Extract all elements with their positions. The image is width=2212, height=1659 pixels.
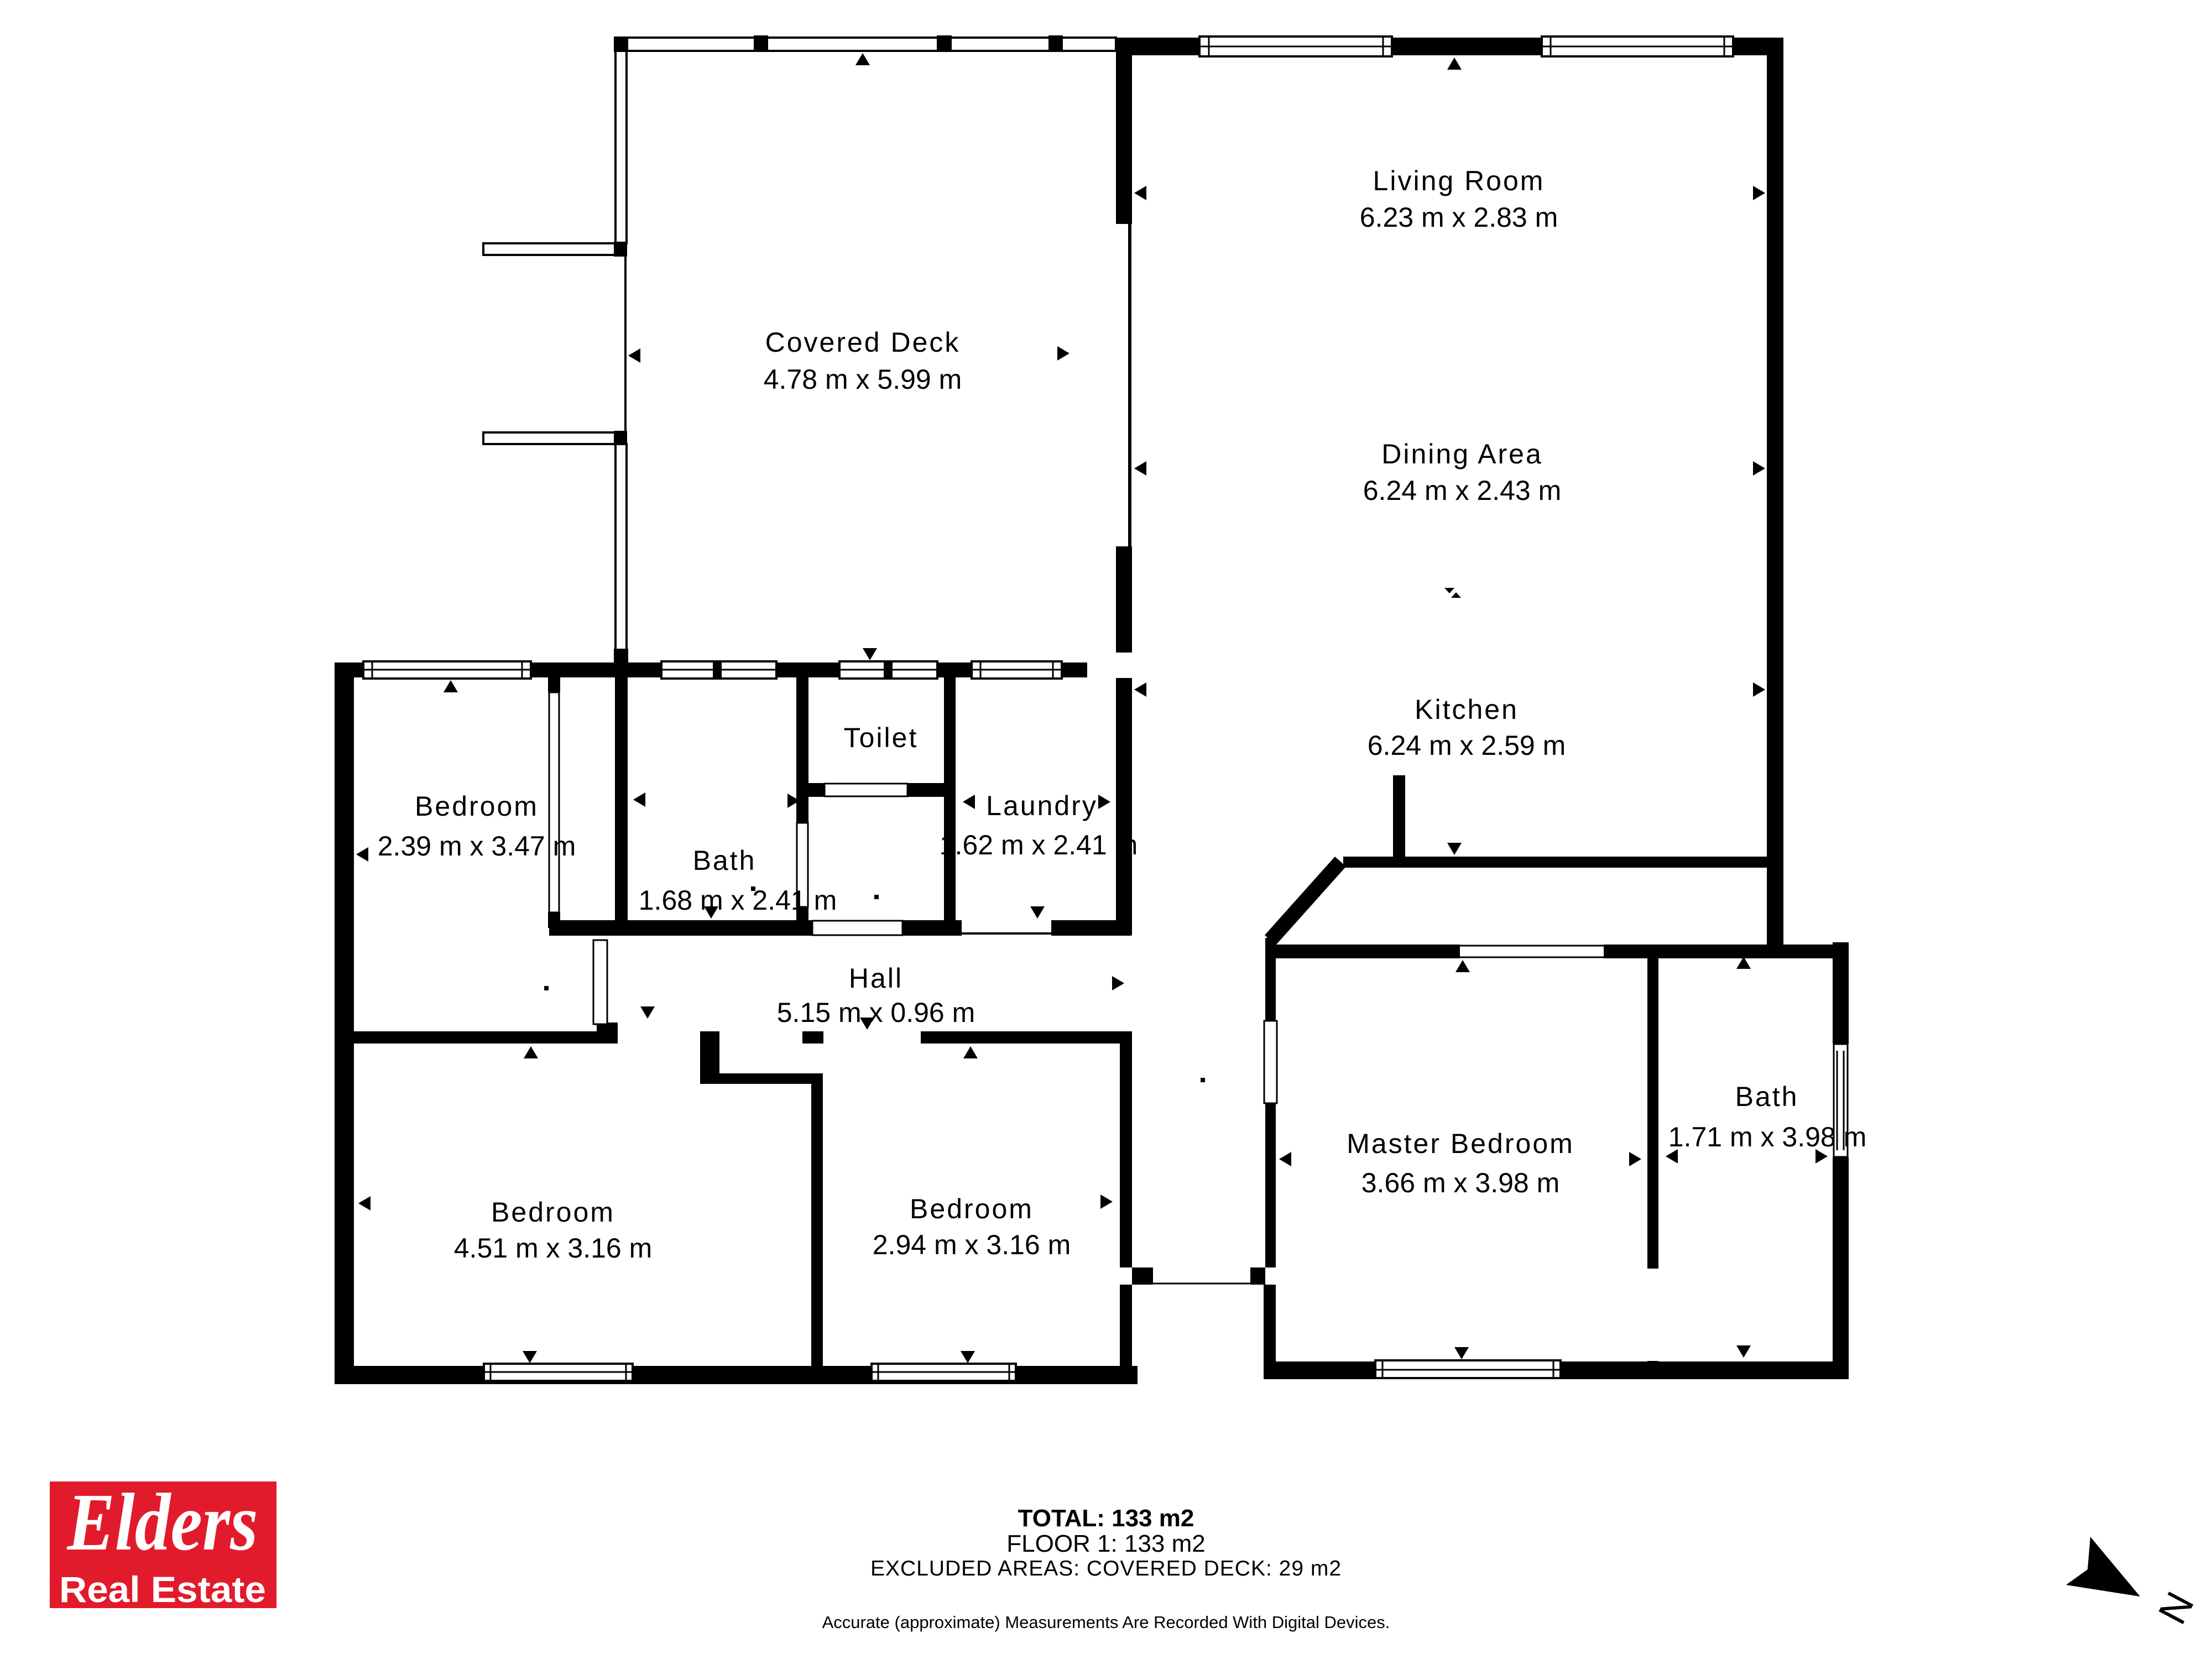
svg-text:Bath: Bath [1735, 1081, 1799, 1112]
svg-text:6.24 m x 2.59 m: 6.24 m x 2.59 m [1368, 730, 1566, 761]
svg-text:FLOOR 1: 133 m2: FLOOR 1: 133 m2 [1006, 1530, 1205, 1557]
svg-text:5.15 m x 0.96 m: 5.15 m x 0.96 m [777, 997, 975, 1028]
svg-text:Hall: Hall [849, 963, 903, 994]
svg-text:1.68 m x 2.41 m: 1.68 m x 2.41 m [639, 885, 837, 916]
svg-text:Bath: Bath [693, 845, 757, 876]
svg-text:Bedroom: Bedroom [910, 1193, 1034, 1224]
svg-text:Bedroom: Bedroom [491, 1197, 615, 1228]
svg-text:4.78 m x 5.99 m: 4.78 m x 5.99 m [764, 364, 962, 395]
svg-text:TOTAL: 133 m2: TOTAL: 133 m2 [1018, 1505, 1194, 1532]
svg-text:3.66 m x 3.98 m: 3.66 m x 3.98 m [1361, 1167, 1560, 1198]
svg-text:Laundry: Laundry [986, 790, 1098, 821]
svg-text:1.62 m x 2.41 m: 1.62 m x 2.41 m [940, 830, 1138, 860]
svg-text:6.24 m x 2.43 m: 6.24 m x 2.43 m [1363, 475, 1562, 506]
svg-text:Master Bedroom: Master Bedroom [1347, 1128, 1574, 1159]
svg-text:EXCLUDED AREAS: COVERED DECK:: EXCLUDED AREAS: COVERED DECK: 29 m2 [870, 1557, 1342, 1580]
svg-text:Real Estate: Real Estate [59, 1569, 266, 1610]
svg-text:Kitchen: Kitchen [1415, 694, 1519, 725]
svg-text:Living Room: Living Room [1373, 165, 1545, 196]
svg-text:Bedroom: Bedroom [415, 791, 539, 822]
svg-text:4.51 m x 3.16 m: 4.51 m x 3.16 m [454, 1233, 653, 1264]
svg-text:1.71 m x 3.98 m: 1.71 m x 3.98 m [1668, 1121, 1867, 1152]
svg-text:Dining Area: Dining Area [1381, 439, 1543, 469]
svg-text:Toilet: Toilet [844, 722, 919, 753]
svg-text:Elders: Elders [66, 1477, 258, 1568]
svg-text:2.94 m x 3.16 m: 2.94 m x 3.16 m [873, 1229, 1071, 1260]
svg-text:2.39 m x 3.47 m: 2.39 m x 3.47 m [378, 831, 576, 862]
svg-text:Accurate (approximate) Measure: Accurate (approximate) Measurements Are … [822, 1613, 1390, 1632]
svg-text:6.23 m x 2.83 m: 6.23 m x 2.83 m [1360, 202, 1558, 233]
svg-text:Covered Deck: Covered Deck [765, 327, 961, 358]
